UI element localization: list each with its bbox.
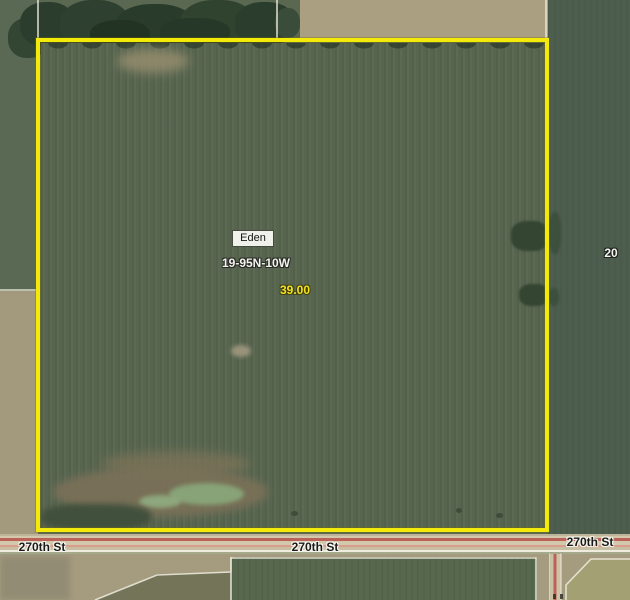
tree-blob — [275, 8, 300, 38]
map-canvas[interactable]: Eden 19-95N-10W 39.00 270th St 270th St … — [0, 0, 630, 600]
parcel-name-label: Eden — [233, 231, 273, 246]
parcel-south-green — [231, 557, 537, 600]
acreage-label: 39.00 — [264, 283, 326, 297]
field-west-north — [0, 0, 38, 291]
field-east — [548, 0, 630, 536]
tree-clump-outside — [549, 212, 561, 254]
field-south-dark-patch — [0, 556, 70, 600]
township-section-label: 19-95N-10W — [215, 256, 297, 270]
road-label-east: 270th St — [550, 535, 630, 549]
road-label-center: 270th St — [275, 540, 355, 554]
clipped-section-marker — [551, 593, 565, 600]
road-label-west: 270th St — [2, 540, 82, 554]
section-label-east: 20 — [591, 246, 630, 260]
tree-clump-outside — [549, 288, 559, 306]
field-west-south-tan — [0, 291, 38, 534]
field-north-tan — [300, 0, 548, 42]
